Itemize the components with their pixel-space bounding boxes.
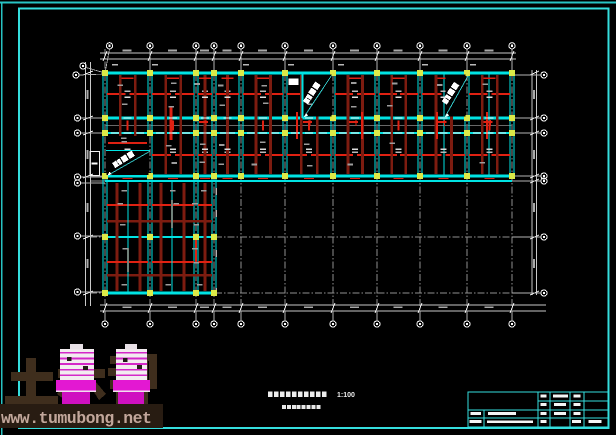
- svg-text:www.tumubong.net: www.tumubong.net: [1, 409, 151, 428]
- svg-text:1:100: 1:100: [337, 392, 355, 399]
